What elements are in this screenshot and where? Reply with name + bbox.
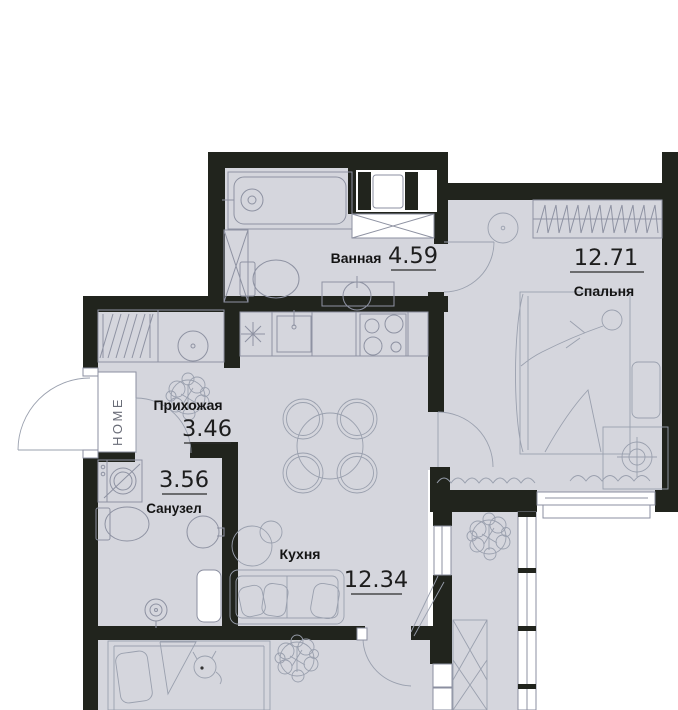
floor-plan: HOME [0,0,678,710]
wall-segment [434,214,448,244]
wall-segment [430,628,452,664]
glazing-mullion [518,568,536,573]
niche-pier-icon [358,172,371,210]
cat-eye [200,666,203,669]
wall-segment [208,152,225,312]
wall-segment [83,296,98,376]
wall-segment [433,575,452,628]
kitchen-bedroom-opening [428,410,450,470]
wall-segment [224,296,240,368]
wall-segment [433,512,452,526]
wall-segment [428,292,444,412]
room-label-wc: Санузел [146,501,202,516]
wall-segment [83,450,98,710]
entry-door-arc [18,378,90,450]
room-area-wc: 3.56 [159,467,209,493]
room-label-hallway: Прихожая [153,397,222,413]
bedroom-window-sill [543,505,650,518]
room-area-hallway: 3.46 [182,416,232,442]
room-area-kitchen: 12.34 [344,567,408,593]
balcony-side-window [433,688,452,710]
doormat-text: HOME [110,397,125,446]
room-area-bedroom: 12.71 [574,245,638,271]
door-jamb [357,628,367,640]
floor-plan-canvas: HOME [0,0,678,710]
balcony-side-window [433,664,452,687]
balcony-door-opening [365,626,411,642]
room-label-bedroom: Спальня [574,283,634,299]
utility-niche [352,170,437,238]
glazing-mullion [518,626,536,631]
door-jamb [83,368,98,376]
room-label-bathroom: Ванная [331,250,382,266]
niche-pier-icon [405,172,418,210]
room-label-kitchen: Кухня [280,546,321,562]
glazing-mullion [518,512,536,517]
radiator-icon [197,570,221,622]
door-jamb [83,450,98,458]
wall-segment [208,152,448,168]
wall-segment [83,626,365,640]
wall-segment [430,490,537,512]
wall-segment [662,152,678,512]
wall-segment [435,183,678,200]
glazing-mullion [518,684,536,689]
water-heater-icon [373,175,403,208]
room-area-bathroom: 4.59 [388,243,438,269]
wall-segment [655,490,678,512]
balcony-floor [450,512,518,710]
